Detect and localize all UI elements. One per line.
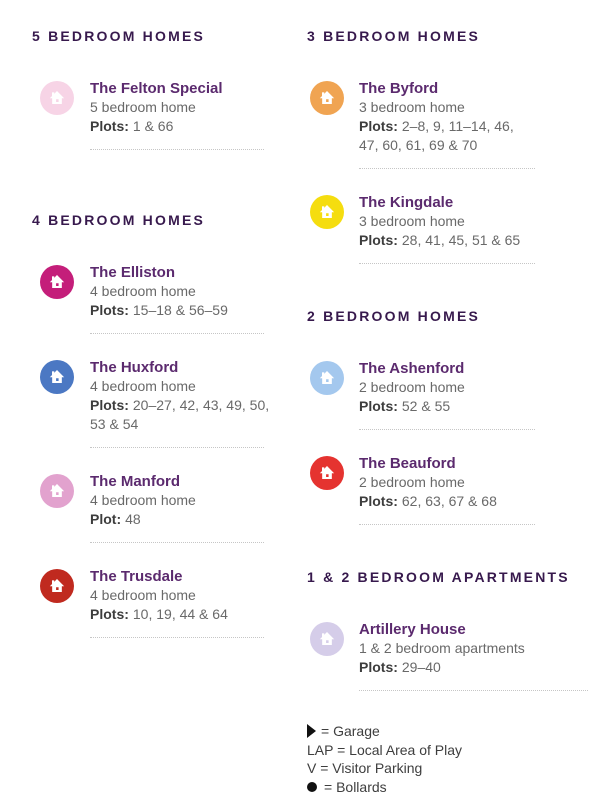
home-name: The Huxford xyxy=(90,358,270,377)
plots-value: 1 & 66 xyxy=(133,118,173,134)
plots-label: Plots: xyxy=(90,397,129,413)
home-description: 4 bedroom home xyxy=(90,282,270,301)
home-type-card-elliston: The Elliston 4 bedroom home Plots:15–18 … xyxy=(32,263,284,320)
house-icon xyxy=(40,569,74,603)
plots-label: Plots: xyxy=(359,118,398,134)
home-name: Artillery House xyxy=(359,620,537,639)
plots-value: 48 xyxy=(125,511,141,527)
divider xyxy=(359,690,588,691)
section-heading: 4 BEDROOM HOMES xyxy=(32,212,284,228)
home-type-card-byford: The Byford 3 bedroom home Plots:2–8, 9, … xyxy=(307,79,599,155)
section-heading: 3 BEDROOM HOMES xyxy=(307,28,599,44)
home-description: 1 & 2 bedroom apartments xyxy=(359,639,537,658)
bollards-dot-icon xyxy=(307,782,317,792)
section-heading: 2 BEDROOM HOMES xyxy=(307,308,599,324)
plots-value: 15–18 & 56–59 xyxy=(133,302,228,318)
plots-value: 52 & 55 xyxy=(402,398,450,414)
section-heading: 5 BEDROOM HOMES xyxy=(32,28,284,44)
plots-label: Plots: xyxy=(359,232,398,248)
legend-label: = Bollards xyxy=(324,779,387,795)
house-icon xyxy=(40,81,74,115)
plots-label: Plots: xyxy=(90,606,129,622)
home-plots: Plot:48 xyxy=(90,510,270,529)
home-description: 2 bedroom home xyxy=(359,378,537,397)
section-4-bedroom-homes: 4 BEDROOM HOMES The Elliston 4 bedroom h… xyxy=(32,212,284,638)
legend-label: LAP = Local Area of Play xyxy=(307,742,462,758)
home-plots: Plots:28, 41, 45, 51 & 65 xyxy=(359,231,537,250)
plots-label: Plot: xyxy=(90,511,121,527)
plots-label: Plots: xyxy=(359,398,398,414)
home-type-card-ashenford: The Ashenford 2 bedroom home Plots:52 & … xyxy=(307,359,599,416)
divider xyxy=(359,524,535,525)
house-icon xyxy=(310,622,344,656)
plots-value: 62, 63, 67 & 68 xyxy=(402,493,497,509)
legend-label: V = Visitor Parking xyxy=(307,760,422,776)
home-name: The Elliston xyxy=(90,263,270,282)
map-key-legend: = Garage LAP = Local Area of Play V = Vi… xyxy=(307,722,599,796)
home-name: The Ashenford xyxy=(359,359,537,378)
home-description: 4 bedroom home xyxy=(90,586,270,605)
legend-label: = Garage xyxy=(321,723,380,739)
home-description: 3 bedroom home xyxy=(359,98,537,117)
house-icon xyxy=(310,81,344,115)
house-icon xyxy=(40,265,74,299)
section-3-bedroom-homes: 3 BEDROOM HOMES The Byford 3 bedroom hom… xyxy=(307,28,599,264)
divider xyxy=(359,263,535,264)
house-icon xyxy=(310,456,344,490)
section-5-bedroom-homes: 5 BEDROOM HOMES The Felton Special 5 bed… xyxy=(32,28,284,150)
home-name: The Byford xyxy=(359,79,537,98)
home-name: The Felton Special xyxy=(90,79,270,98)
divider xyxy=(90,542,264,543)
home-name: The Trusdale xyxy=(90,567,270,586)
home-plots: Plots:52 & 55 xyxy=(359,397,537,416)
divider xyxy=(90,333,264,334)
home-plots: Plots:29–40 xyxy=(359,658,537,677)
home-type-card-huxford: The Huxford 4 bedroom home Plots:20–27, … xyxy=(32,358,284,434)
divider xyxy=(90,447,264,448)
home-type-card-manford: The Manford 4 bedroom home Plot:48 xyxy=(32,472,284,529)
plots-label: Plots: xyxy=(90,118,129,134)
divider xyxy=(359,429,535,430)
section-2-bedroom-homes: 2 BEDROOM HOMES The Ashenford 2 bedroom … xyxy=(307,308,599,525)
divider xyxy=(359,168,535,169)
home-plots: Plots:10, 19, 44 & 64 xyxy=(90,605,270,624)
home-description: 2 bedroom home xyxy=(359,473,537,492)
house-icon xyxy=(40,474,74,508)
home-name: The Beauford xyxy=(359,454,537,473)
home-description: 3 bedroom home xyxy=(359,212,537,231)
plots-label: Plots: xyxy=(359,659,398,675)
home-plots: Plots:1 & 66 xyxy=(90,117,270,136)
home-plots: Plots:2–8, 9, 11–14, 46, 47, 60, 61, 69 … xyxy=(359,117,537,155)
legend-row-bollards: = Bollards xyxy=(307,778,599,797)
house-icon xyxy=(310,361,344,395)
home-type-card-beauford: The Beauford 2 bedroom home Plots:62, 63… xyxy=(307,454,599,511)
home-type-card-artillery-house: Artillery House 1 & 2 bedroom apartments… xyxy=(307,620,599,677)
plots-label: Plots: xyxy=(90,302,129,318)
home-description: 4 bedroom home xyxy=(90,377,270,396)
legend-row-garage: = Garage xyxy=(307,722,599,741)
home-description: 5 bedroom home xyxy=(90,98,270,117)
home-type-card-kingdale: The Kingdale 3 bedroom home Plots:28, 41… xyxy=(307,193,599,250)
home-name: The Manford xyxy=(90,472,270,491)
home-description: 4 bedroom home xyxy=(90,491,270,510)
legend-row-visitor-parking: V = Visitor Parking xyxy=(307,759,599,778)
left-column: 5 BEDROOM HOMES The Felton Special 5 bed… xyxy=(32,28,284,638)
plots-value: 10, 19, 44 & 64 xyxy=(133,606,228,622)
legend-row-lap: LAP = Local Area of Play xyxy=(307,741,599,760)
home-plots: Plots:62, 63, 67 & 68 xyxy=(359,492,537,511)
home-name: The Kingdale xyxy=(359,193,537,212)
right-column: 3 BEDROOM HOMES The Byford 3 bedroom hom… xyxy=(307,28,599,796)
divider xyxy=(90,149,264,150)
home-plots: Plots:20–27, 42, 43, 49, 50, 53 & 54 xyxy=(90,396,270,434)
home-type-card-trusdale: The Trusdale 4 bedroom home Plots:10, 19… xyxy=(32,567,284,624)
home-type-card-felton-special: The Felton Special 5 bedroom home Plots:… xyxy=(32,79,284,136)
house-icon xyxy=(310,195,344,229)
plots-label: Plots: xyxy=(359,493,398,509)
house-icon xyxy=(40,360,74,394)
garage-triangle-icon xyxy=(307,724,316,738)
home-plots: Plots:15–18 & 56–59 xyxy=(90,301,270,320)
section-heading: 1 & 2 BEDROOM APARTMENTS xyxy=(307,569,599,585)
plots-value: 28, 41, 45, 51 & 65 xyxy=(402,232,520,248)
section-1-2-bedroom-apartments: 1 & 2 BEDROOM APARTMENTS Artillery House… xyxy=(307,569,599,691)
divider xyxy=(90,637,264,638)
plots-value: 29–40 xyxy=(402,659,441,675)
